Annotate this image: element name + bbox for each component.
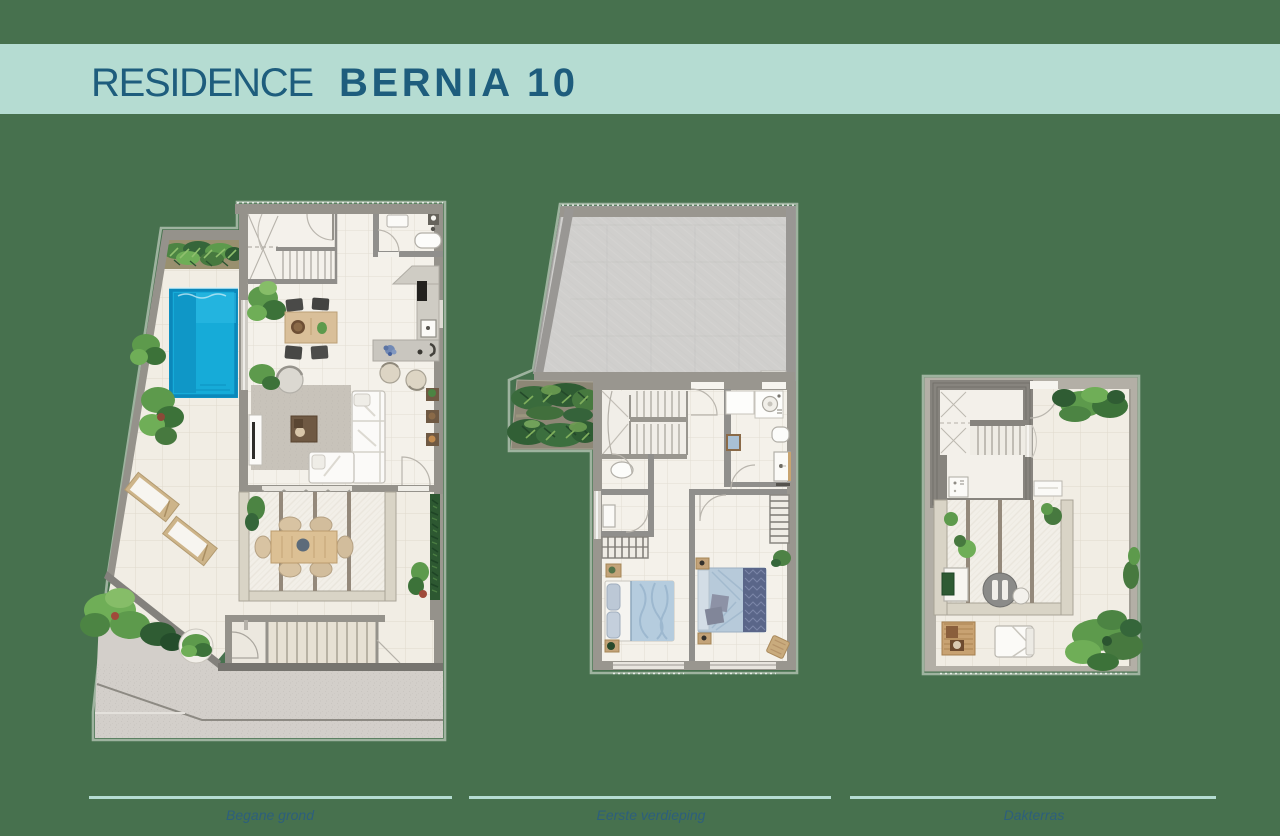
svg-text:Dakterras: Dakterras (1004, 807, 1065, 823)
svg-text:Begane grond: Begane grond (226, 807, 315, 823)
svg-text:Eerste verdieping: Eerste verdieping (597, 807, 706, 823)
